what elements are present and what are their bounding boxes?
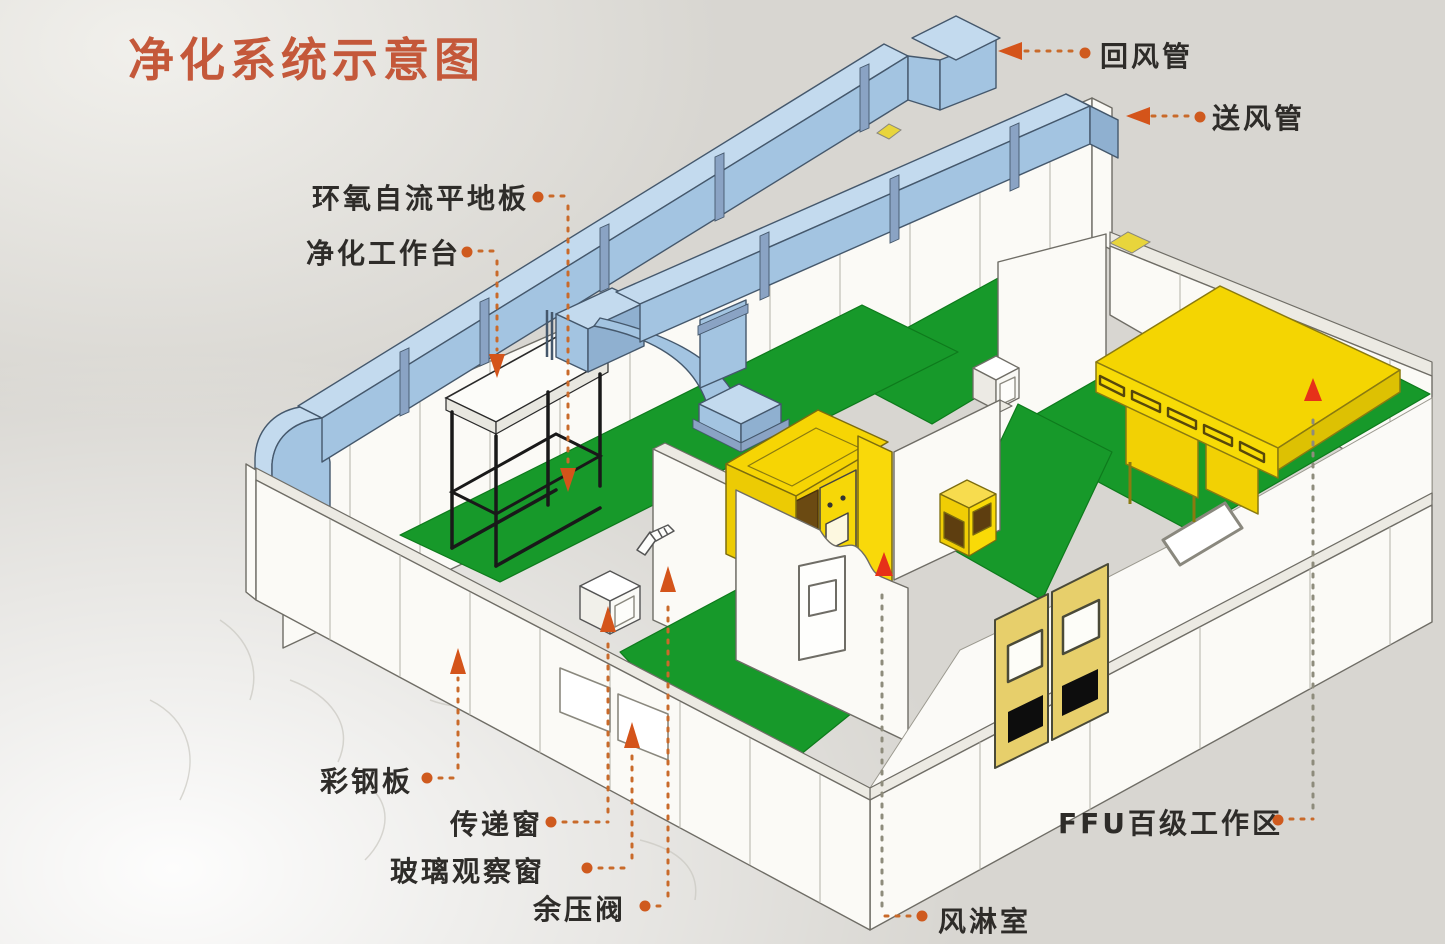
page-title: 净化系统示意图	[128, 33, 485, 87]
label-steel-panel: 彩钢板	[320, 765, 413, 798]
cleanroom-diagram: 净化系统示意图 回风管 送风管 环氧自流平地板 净化工作台 彩钢板 传递窗 玻璃…	[0, 0, 1445, 944]
white-door	[799, 556, 845, 660]
label-supply-duct: 送风管	[1212, 102, 1305, 135]
cleanroom-schematic-page: 净化系统示意图 回风管 送风管 环氧自流平地板 净化工作台 彩钢板 传递窗 玻璃…	[0, 0, 1445, 944]
label-glass-window: 玻璃观察窗	[390, 855, 545, 888]
pass-box-yellow	[940, 480, 996, 556]
label-clean-workbench: 净化工作台	[306, 237, 461, 270]
label-transfer-window: 传递窗	[449, 808, 543, 841]
label-epoxy-floor: 环氧自流平地板	[312, 182, 529, 215]
label-pressure-valve: 余压阀	[532, 893, 626, 926]
label-return-duct: 回风管	[1100, 40, 1193, 73]
label-ffu-area: FFU百级工作区	[1058, 807, 1283, 840]
label-air-shower: 风淋室	[938, 905, 1031, 938]
